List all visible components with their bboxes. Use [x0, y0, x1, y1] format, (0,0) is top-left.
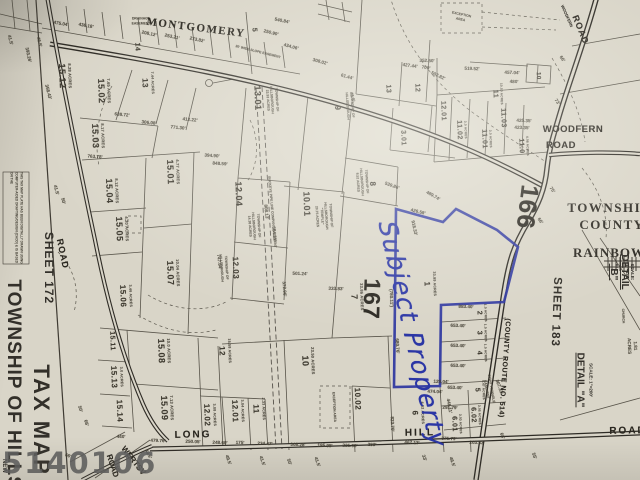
lot-number-label: 4.20 ACRES15.05: [112, 216, 130, 242]
dimension-label: 185.98': [317, 443, 332, 449]
dimension-label: 248.60': [212, 440, 227, 446]
dimension-label: 1.81 ACRES: [626, 338, 638, 355]
lot-number: 15.08: [154, 338, 167, 363]
lot-number: 15.01: [163, 159, 176, 184]
lot-number: 9: [332, 105, 343, 110]
dimension-label: 763.78': [87, 153, 103, 160]
dimension-label: 457.04': [504, 70, 519, 76]
dimension-label: 883.40': [458, 304, 473, 310]
dimension-label: 519.52': [464, 66, 479, 72]
dimension-label: 358.43': [43, 84, 52, 100]
lot-number: 15.13: [108, 366, 119, 389]
lot-number: 10: [298, 347, 311, 375]
lot-number: 15.02: [94, 78, 107, 103]
dimension-label: 653.40': [450, 343, 465, 349]
dimension-label: 539.86': [384, 181, 400, 192]
dimension-label: 918.33': [410, 220, 419, 236]
dimension-label: 283': [368, 442, 377, 448]
lot-number: 13: [139, 72, 150, 95]
dimension-label: 700': [421, 64, 431, 71]
dimension-label: 427.44': [402, 62, 418, 70]
photo-watermark-number: 5140106: [2, 446, 157, 480]
dimension-label: 426.58': [410, 207, 426, 216]
lot-number-label: 3.01: [398, 130, 408, 146]
lot-number-label: 8.17 ACRES15.03: [88, 123, 106, 149]
lot-number-label: 3.08 ACRES12.02: [201, 403, 217, 426]
easement-owner-text: TOWNSHIP OF HILLSBOROUGH 23.93 ACRES: [264, 86, 280, 114]
lot-acreage: 4.20 ACRES: [124, 216, 130, 241]
map-labels-layer: SHEET 172 SHEET 183 TAX MAP TOWNSHIP OF …: [0, 0, 640, 480]
dimension-label: 66': [558, 55, 566, 64]
lot-number: 14: [132, 42, 141, 51]
lot-number-label: 10.01: [300, 191, 313, 216]
dimension-label: 61.44': [340, 72, 354, 81]
lot-number-label: 10.04 ACRES15.07: [163, 259, 181, 287]
lot-number-label: 33.99 ACRES1: [421, 271, 437, 296]
lot-number-label: 3.05 ACRES6.02: [468, 405, 482, 425]
lot-acreage: 8.17 ACRES: [100, 123, 106, 148]
dimension-label: 41.5': [6, 34, 14, 45]
lot-acreage: 3.04 ACRES: [239, 399, 244, 422]
lot-number-label: 12.04: [232, 181, 245, 206]
lot-number: 15.11: [107, 331, 117, 351]
lot-number-label: 13.01: [251, 85, 264, 110]
dimension-label: 41.5': [52, 184, 60, 195]
dimension-label: 423.35': [514, 125, 529, 131]
dimension-label: 50': [285, 458, 293, 466]
lot-number-label: 11.03: [498, 108, 508, 128]
lot-number: 13.01: [251, 85, 264, 110]
lot-number-label: 9: [332, 105, 343, 110]
lot-number-label: 7.65 ACRES15.02: [94, 78, 112, 104]
dimension-label: 308.02': [312, 57, 328, 67]
dimension-label: 50': [59, 197, 66, 204]
dimension-label: 489.74': [425, 190, 441, 203]
lot-number-label: 12.03: [229, 257, 240, 280]
lot-number-label: 10.0 ACRES15.08: [154, 338, 172, 364]
lot-acreage: 8.28 ACRES: [67, 63, 73, 88]
dimension-label: 203.33': [469, 440, 484, 446]
dimension-label: 372.96': [280, 281, 287, 297]
dimension-label: 49.5': [223, 454, 232, 465]
lot-number: 15.07: [163, 259, 176, 287]
lot-number-label: 8: [367, 181, 378, 186]
dimension-label: 234.47': [257, 441, 272, 447]
county-boundary-label: COUNTY: [579, 217, 640, 233]
road-name-label: 166: [508, 183, 546, 231]
lot-number-label: 33.86 ACRES7: [347, 283, 365, 311]
dimension-label: 55': [530, 452, 538, 460]
dimension-label: 438.18': [78, 22, 94, 31]
dimension-label: 412.22': [182, 116, 198, 124]
dimension-label: 41.5': [312, 456, 321, 467]
lot-number: 13: [383, 84, 392, 93]
dimension-label: 425.35': [516, 118, 531, 124]
easement-owner-text: TOWNSHIP OF HILLSBOROUGH 14.38 ACRES: [246, 212, 262, 240]
lot-number: 12: [412, 83, 421, 92]
lot-number-label: 4.08 ACRES11.0: [516, 136, 530, 156]
lot-number-label: 8.12 ACRES15.04: [102, 178, 120, 204]
lot-acreage: 10.04 ACRES: [175, 259, 181, 287]
lot-acreage: 7.44 ACRES: [149, 72, 154, 95]
road-name-label: ROAD: [546, 140, 576, 152]
lot-number-label: 23.50 ACRES10: [298, 347, 316, 375]
lot-number: 15.05: [112, 216, 125, 241]
lot-acreage: 15.58 ACRES: [226, 338, 232, 363]
lot-number: 12.03: [229, 257, 240, 280]
dimension-label: 66': [498, 432, 506, 440]
lot-number-label: 10.50 ACRES11: [490, 83, 504, 105]
easement-owner-text: TOWNSHIP OF HILLSBOROUGH "TEMPLE" 20.75 …: [314, 202, 334, 231]
dimension-label: 46.5': [35, 36, 43, 47]
lot-acreage: 10.50 ACRES: [499, 83, 504, 105]
lot-number-label: 4.77 ACRES15.01: [163, 159, 181, 185]
road-name-label: ROAD: [609, 424, 640, 438]
lot-number: 12.01: [229, 400, 240, 423]
lot-number-label: 15.11: [107, 331, 117, 351]
easement-owner-text: EXCEPTION AREA: [450, 10, 471, 23]
lot-number: 15.03: [88, 123, 101, 148]
dimension-label: 73': [553, 98, 561, 107]
dimension-label: 50': [76, 405, 83, 413]
lot-number-label: 3.0 ACRES15.13: [108, 365, 124, 388]
dimension-label: 653.40': [447, 385, 462, 391]
tax-map-photo: SHEET 172 SHEET 183 TAX MAP TOWNSHIP OF …: [0, 0, 640, 480]
lot-acreage: 3.08 ACRES: [211, 403, 216, 426]
dimension-label: 250.90': [263, 28, 279, 37]
dimension-label: 653.40': [450, 363, 465, 369]
dimension-label: 231.03': [342, 443, 357, 449]
lot-number-label: 3.0 ACRES11.02: [454, 120, 468, 140]
dimension-label: 66': [82, 419, 89, 427]
road-name-label: WOODFERN: [543, 124, 603, 136]
lot-acreage: 4.77 ACRES: [175, 159, 181, 184]
lot-acreage: 8.12 ACRES: [114, 178, 120, 203]
easement-owner-text: CHURCH: [620, 309, 625, 324]
lot-number: 15.12: [55, 63, 68, 88]
lot-number: 12.01: [438, 101, 448, 121]
lot-acreage: 10.0 ACRES: [166, 338, 172, 363]
easement-owner-text: TOWNSHIP OF HILLSBOROUGH: [218, 254, 229, 282]
lot-number: 15.04: [102, 178, 115, 203]
lot-acreage: 4.08 ACRES: [525, 136, 530, 156]
road-name-label: (COUNTY ROUTE NO. 514): [496, 318, 512, 418]
dimension-label: 75': [548, 186, 556, 195]
easement-owner-text: EXCEPTION AREA: [331, 392, 337, 422]
lot-acreage: 1.0 ACRES: [483, 304, 488, 322]
lot-number-label: 3.0 ACRES11.01: [479, 129, 493, 149]
sheet-183-label: SHEET 183: [549, 277, 563, 347]
lot-number-label: 10: [533, 72, 541, 80]
township-boundary-label: TOWNSHIP: [567, 200, 640, 216]
lot-number: 10: [533, 72, 541, 80]
dimension-label: 46.5': [447, 456, 456, 467]
road-name-label: ROAD: [569, 14, 591, 47]
lot-acreage: 3.46 ACRES: [127, 284, 132, 307]
dimension-label: 434.06': [283, 42, 299, 52]
lot-number-label: 13: [383, 84, 392, 93]
lot-number-label: 7.13 ACRES15.09: [157, 395, 175, 421]
dimension-label: 393.26': [24, 47, 33, 63]
dimension-label: 33': [420, 454, 428, 462]
lot-number: 12.04: [232, 181, 245, 206]
lot-acreage: 2.33 ACRES: [260, 398, 265, 421]
dimension-label: 638.72': [114, 111, 130, 119]
dimension-label: 653.40': [450, 323, 465, 329]
dimension-label: 175': [236, 440, 245, 446]
lot-number-label: 4.47 ACRES5: [472, 380, 486, 400]
lot-number: 11: [250, 398, 261, 421]
lot-number-label: 3.04 ACRES12.01: [229, 399, 245, 422]
lot-number-label: 12.01: [438, 101, 448, 121]
dimension-label: 394.90': [204, 152, 220, 159]
dimension-label: 823.70': [389, 416, 395, 431]
lot-number: 3.01: [398, 130, 408, 146]
lot-acreage: 1.0 ACRES: [483, 324, 488, 342]
lot-acreage: 3.03 ACRES: [458, 414, 463, 434]
lot-acreage: 7.13 ACRES: [169, 395, 175, 420]
dimension-label: 475.04': [53, 20, 69, 29]
road-name-label: LONG: [174, 428, 211, 442]
lot-number-label: 3.46 ACRES15.06: [117, 284, 133, 307]
lot-number: 11.03: [498, 108, 508, 128]
dimension-label: 306.08': [141, 119, 157, 127]
lot-acreage: 33.99 ACRES: [431, 271, 437, 296]
lot-number-label: 1.0 ACRES4: [474, 344, 488, 362]
dimension-label: 479.76': [150, 438, 165, 444]
lot-number: 10.01: [300, 191, 313, 216]
lot-acreage: 23.50 ACRES: [310, 347, 316, 375]
lot-number: 15.14: [113, 400, 124, 423]
dimension-label: 540.84': [274, 17, 290, 26]
lot-number: 12.02: [201, 404, 212, 427]
lot-number-label: 3.03 ACRES6.01: [449, 414, 463, 434]
lot-number-label: 15.14: [113, 400, 124, 423]
lot-number-label: 1.0 ACRES2: [474, 304, 488, 322]
lot-number: 5: [249, 28, 258, 33]
lot-number-label: 10.02: [351, 388, 362, 411]
dimension-label: 333.83': [328, 286, 343, 292]
dimension-label: 253.21': [164, 33, 180, 42]
dimension-label: 848.59': [212, 160, 228, 167]
lot-acreage: 1.0 ACRES: [483, 344, 488, 362]
dimension-label: 41.5': [257, 455, 266, 466]
lot-acreage: 3.0 ACRES: [463, 120, 468, 140]
easement-owner-text: 30' WIDE SLOPE EASEMENT: [235, 44, 281, 60]
lot-number-label: 5: [249, 28, 258, 33]
lot-number: 15.09: [157, 395, 170, 420]
detail-a-scale: SCALE: 1"=200': [589, 363, 594, 397]
lot-acreage: 33.86 ACRES: [359, 283, 365, 311]
dimension-label: 501.24': [292, 271, 307, 277]
dimension-label: 440': [117, 434, 126, 440]
lot-number: 7: [347, 283, 360, 311]
dimension-label: 480': [510, 79, 519, 85]
dimension-label: 308.28': [290, 442, 305, 448]
detail-a-label: DETAIL "A": [575, 353, 586, 408]
dimension-label: 208.12': [141, 30, 157, 39]
disclaimer-text: THIS TAX MAP PLATE HAS BEEN DIGITALLY DR…: [8, 172, 23, 264]
lot-acreage: 4.47 ACRES: [481, 380, 486, 400]
lot-number: 10.02: [351, 388, 362, 411]
detail-b-scale: SCALE: 1"=100': [625, 264, 635, 281]
dimension-label: 352.50': [419, 58, 434, 64]
dimension-label: 771.30': [170, 124, 186, 132]
easement-owner-text: TOWNSHIP OF HILLSBOROUGH: [344, 92, 355, 120]
lot-acreage: 7.65 ACRES: [106, 78, 112, 103]
lot-number-label: 15.58 ACRES12: [216, 338, 232, 363]
dimension-label: 467.13': [404, 440, 419, 446]
lot-number-label: 1.0 ACRES3: [474, 324, 488, 342]
lot-number: 8: [367, 181, 378, 186]
lot-number-label: 8.28 ACRES15.12: [55, 63, 73, 89]
lot-number-label: 2.33 ACRES11: [250, 398, 266, 421]
lot-acreage: 3.0 ACRES: [488, 129, 493, 149]
dimension-label: 273.82': [189, 36, 205, 45]
lot-acreage: 3.05 ACRES: [477, 405, 482, 425]
lot-number-label: 14: [132, 42, 141, 51]
lot-number: 15.06: [117, 285, 128, 308]
lot-acreage: 3.0 ACRES: [118, 365, 123, 388]
lot-number-label: 12: [412, 83, 421, 92]
lot-number-label: 7.44 ACRES13: [139, 72, 155, 95]
dimension-label: 502.82': [430, 70, 446, 82]
